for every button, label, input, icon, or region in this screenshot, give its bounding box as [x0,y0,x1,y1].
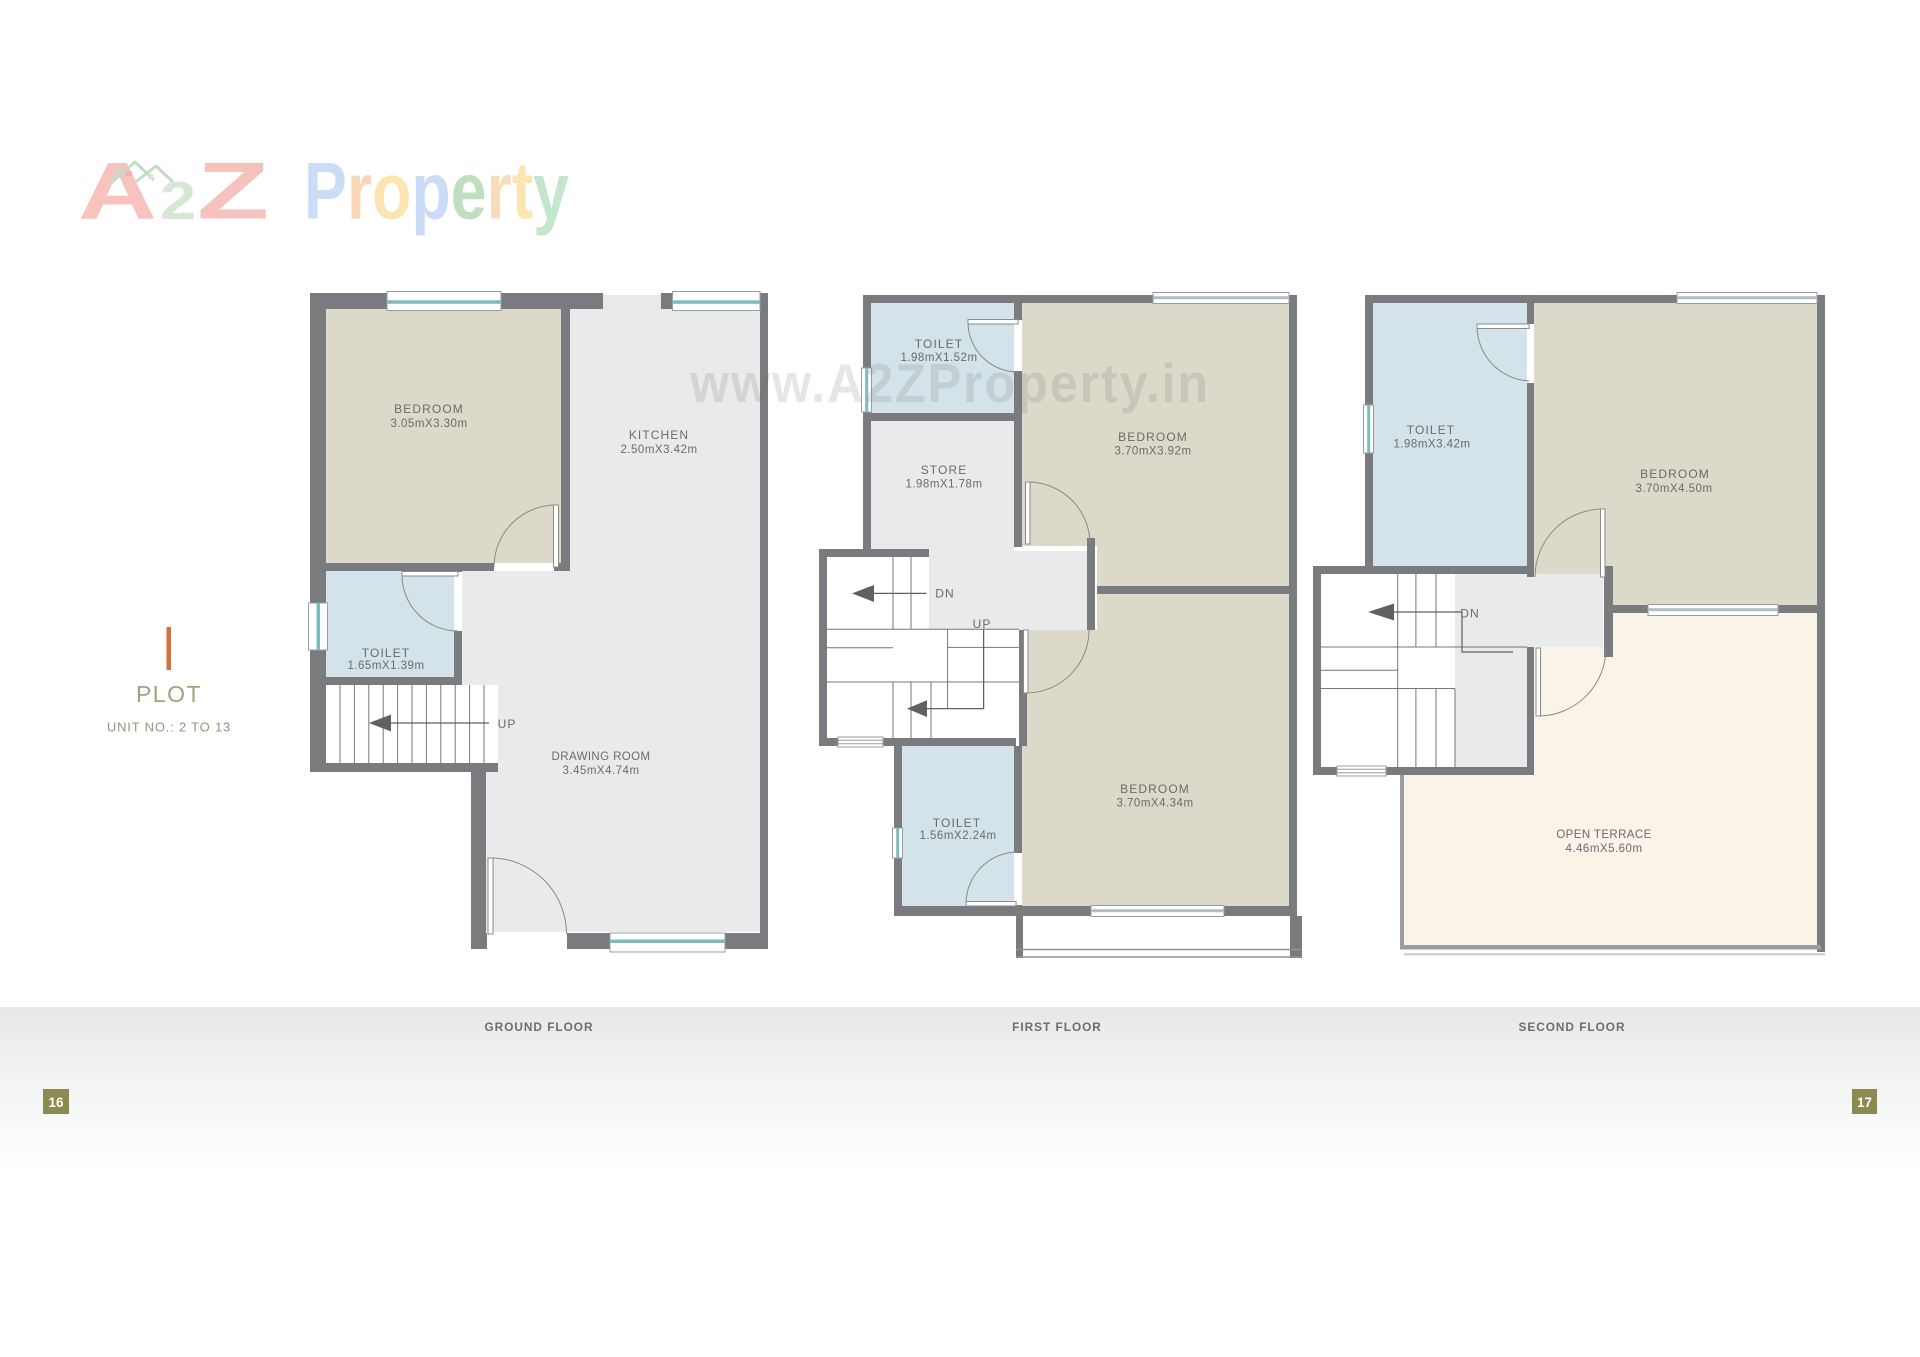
svg-text:UP: UP [973,617,992,631]
svg-text:17: 17 [1857,1095,1872,1110]
svg-text:1.65mX1.39m: 1.65mX1.39m [347,660,424,672]
svg-text:BEDROOM: BEDROOM [1640,467,1710,481]
svg-text:16: 16 [48,1095,64,1110]
svg-text:UNIT NO.: 2 TO 13: UNIT NO.: 2 TO 13 [107,720,231,735]
svg-text:Z: Z [197,147,269,237]
svg-text:PLOT: PLOT [136,681,202,707]
svg-text:TOILET: TOILET [1407,423,1455,437]
svg-text:TOILET: TOILET [915,337,963,351]
svg-text:GROUND FLOOR: GROUND FLOOR [485,1020,594,1034]
svg-text:DN: DN [1460,607,1480,621]
svg-text:STORE: STORE [921,463,968,477]
svg-text:UP: UP [498,717,517,731]
svg-text:BEDROOM: BEDROOM [1120,782,1190,796]
svg-text:DRAWING ROOM: DRAWING ROOM [552,751,651,763]
svg-text:1.98mX1.78m: 1.98mX1.78m [905,479,982,491]
svg-text:3.70mX4.50m: 3.70mX4.50m [1635,483,1712,495]
svg-text:3.70mX3.92m: 3.70mX3.92m [1114,446,1191,458]
svg-text:3.70mX4.34m: 3.70mX4.34m [1116,798,1193,810]
svg-text:KITCHEN: KITCHEN [629,428,689,442]
svg-text:2.50mX3.42m: 2.50mX3.42m [620,444,697,456]
svg-text:www.A2ZProperty.in: www.A2ZProperty.in [689,352,1210,414]
svg-text:A: A [78,147,157,237]
svg-text:3.45mX4.74m: 3.45mX4.74m [562,765,639,777]
svg-text:Property: Property [304,147,569,237]
svg-text:TOILET: TOILET [933,816,981,830]
svg-text:2: 2 [160,171,196,231]
svg-text:BEDROOM: BEDROOM [1118,430,1188,444]
svg-text:SECOND FLOOR: SECOND FLOOR [1518,1020,1625,1034]
svg-text:FIRST FLOOR: FIRST FLOOR [1012,1020,1102,1034]
svg-text:DN: DN [935,587,955,601]
svg-text:OPEN TERRACE: OPEN TERRACE [1556,829,1651,841]
svg-text:3.05mX3.30m: 3.05mX3.30m [390,418,467,430]
svg-text:1.56mX2.24m: 1.56mX2.24m [919,830,996,842]
svg-text:TOILET: TOILET [362,646,410,660]
svg-text:1.98mX3.42m: 1.98mX3.42m [1393,439,1470,451]
svg-text:4.46mX5.60m: 4.46mX5.60m [1565,843,1642,855]
svg-text:BEDROOM: BEDROOM [394,402,464,416]
